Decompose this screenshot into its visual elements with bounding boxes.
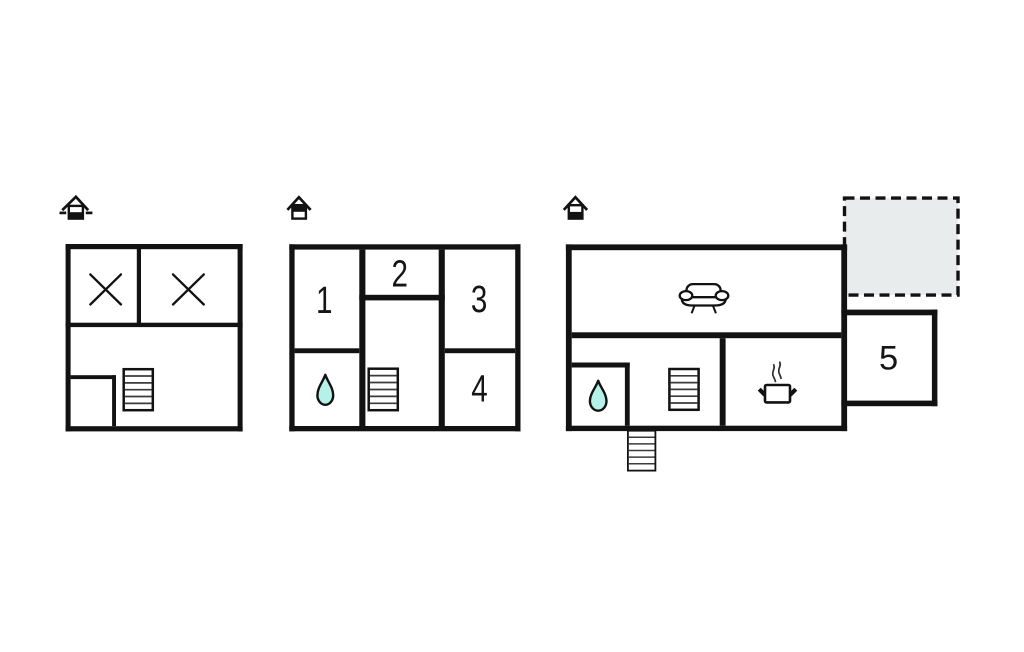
svg-text:3: 3 xyxy=(471,279,487,321)
svg-text:2: 2 xyxy=(391,253,407,295)
svg-text:5: 5 xyxy=(879,339,898,377)
svg-text:4: 4 xyxy=(471,368,487,410)
svg-text:1: 1 xyxy=(316,280,332,322)
